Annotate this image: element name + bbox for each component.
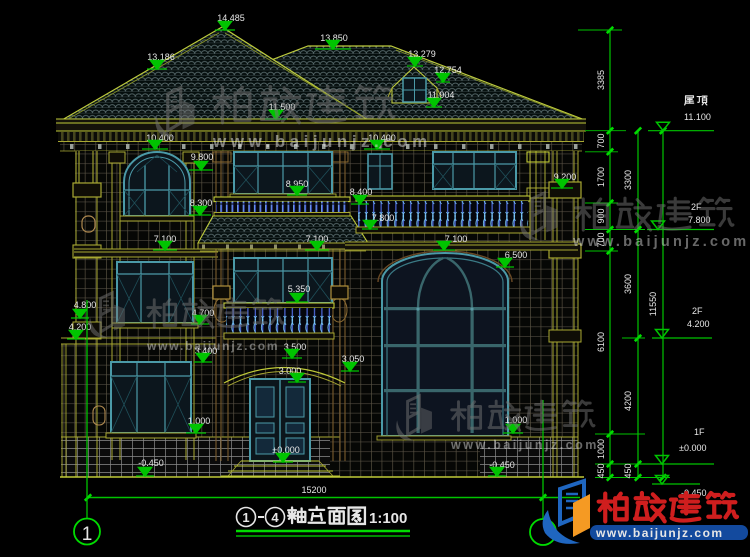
svg-text:www.baijunjz.com: www.baijunjz.com [146,339,279,353]
svg-text:1:100: 1:100 [369,510,407,527]
svg-text:1F: 1F [694,427,705,437]
svg-text:4.200: 4.200 [687,319,710,329]
svg-text:1: 1 [242,510,249,525]
svg-text:3300: 3300 [623,170,633,190]
svg-text:11.100: 11.100 [684,112,711,122]
svg-text:www.baijunjz.com: www.baijunjz.com [450,438,599,452]
svg-text:-0.450: -0.450 [138,458,164,468]
svg-text:15200: 15200 [301,485,326,495]
svg-text:3600: 3600 [623,274,633,294]
svg-text:www.baijunjz.com: www.baijunjz.com [595,526,724,540]
svg-text:www.baijunjz.com: www.baijunjz.com [572,234,749,250]
svg-text:450: 450 [623,463,633,478]
svg-text:www.baijunjz.com: www.baijunjz.com [212,132,432,151]
svg-text:3385: 3385 [596,70,606,90]
svg-text:5.350: 5.350 [288,284,311,294]
svg-text:1: 1 [82,524,93,545]
svg-text:700: 700 [596,133,606,148]
svg-text:9.800: 9.800 [191,152,214,162]
svg-text:4.800: 4.800 [74,300,97,310]
svg-text:2F: 2F [692,306,703,316]
svg-text:4200: 4200 [623,391,633,411]
svg-text:11550: 11550 [648,292,658,316]
svg-text:1700: 1700 [596,167,606,187]
svg-text:4: 4 [271,510,279,525]
svg-text:450: 450 [596,463,606,478]
svg-text:±0.000: ±0.000 [679,443,706,453]
svg-text:6100: 6100 [596,332,606,352]
